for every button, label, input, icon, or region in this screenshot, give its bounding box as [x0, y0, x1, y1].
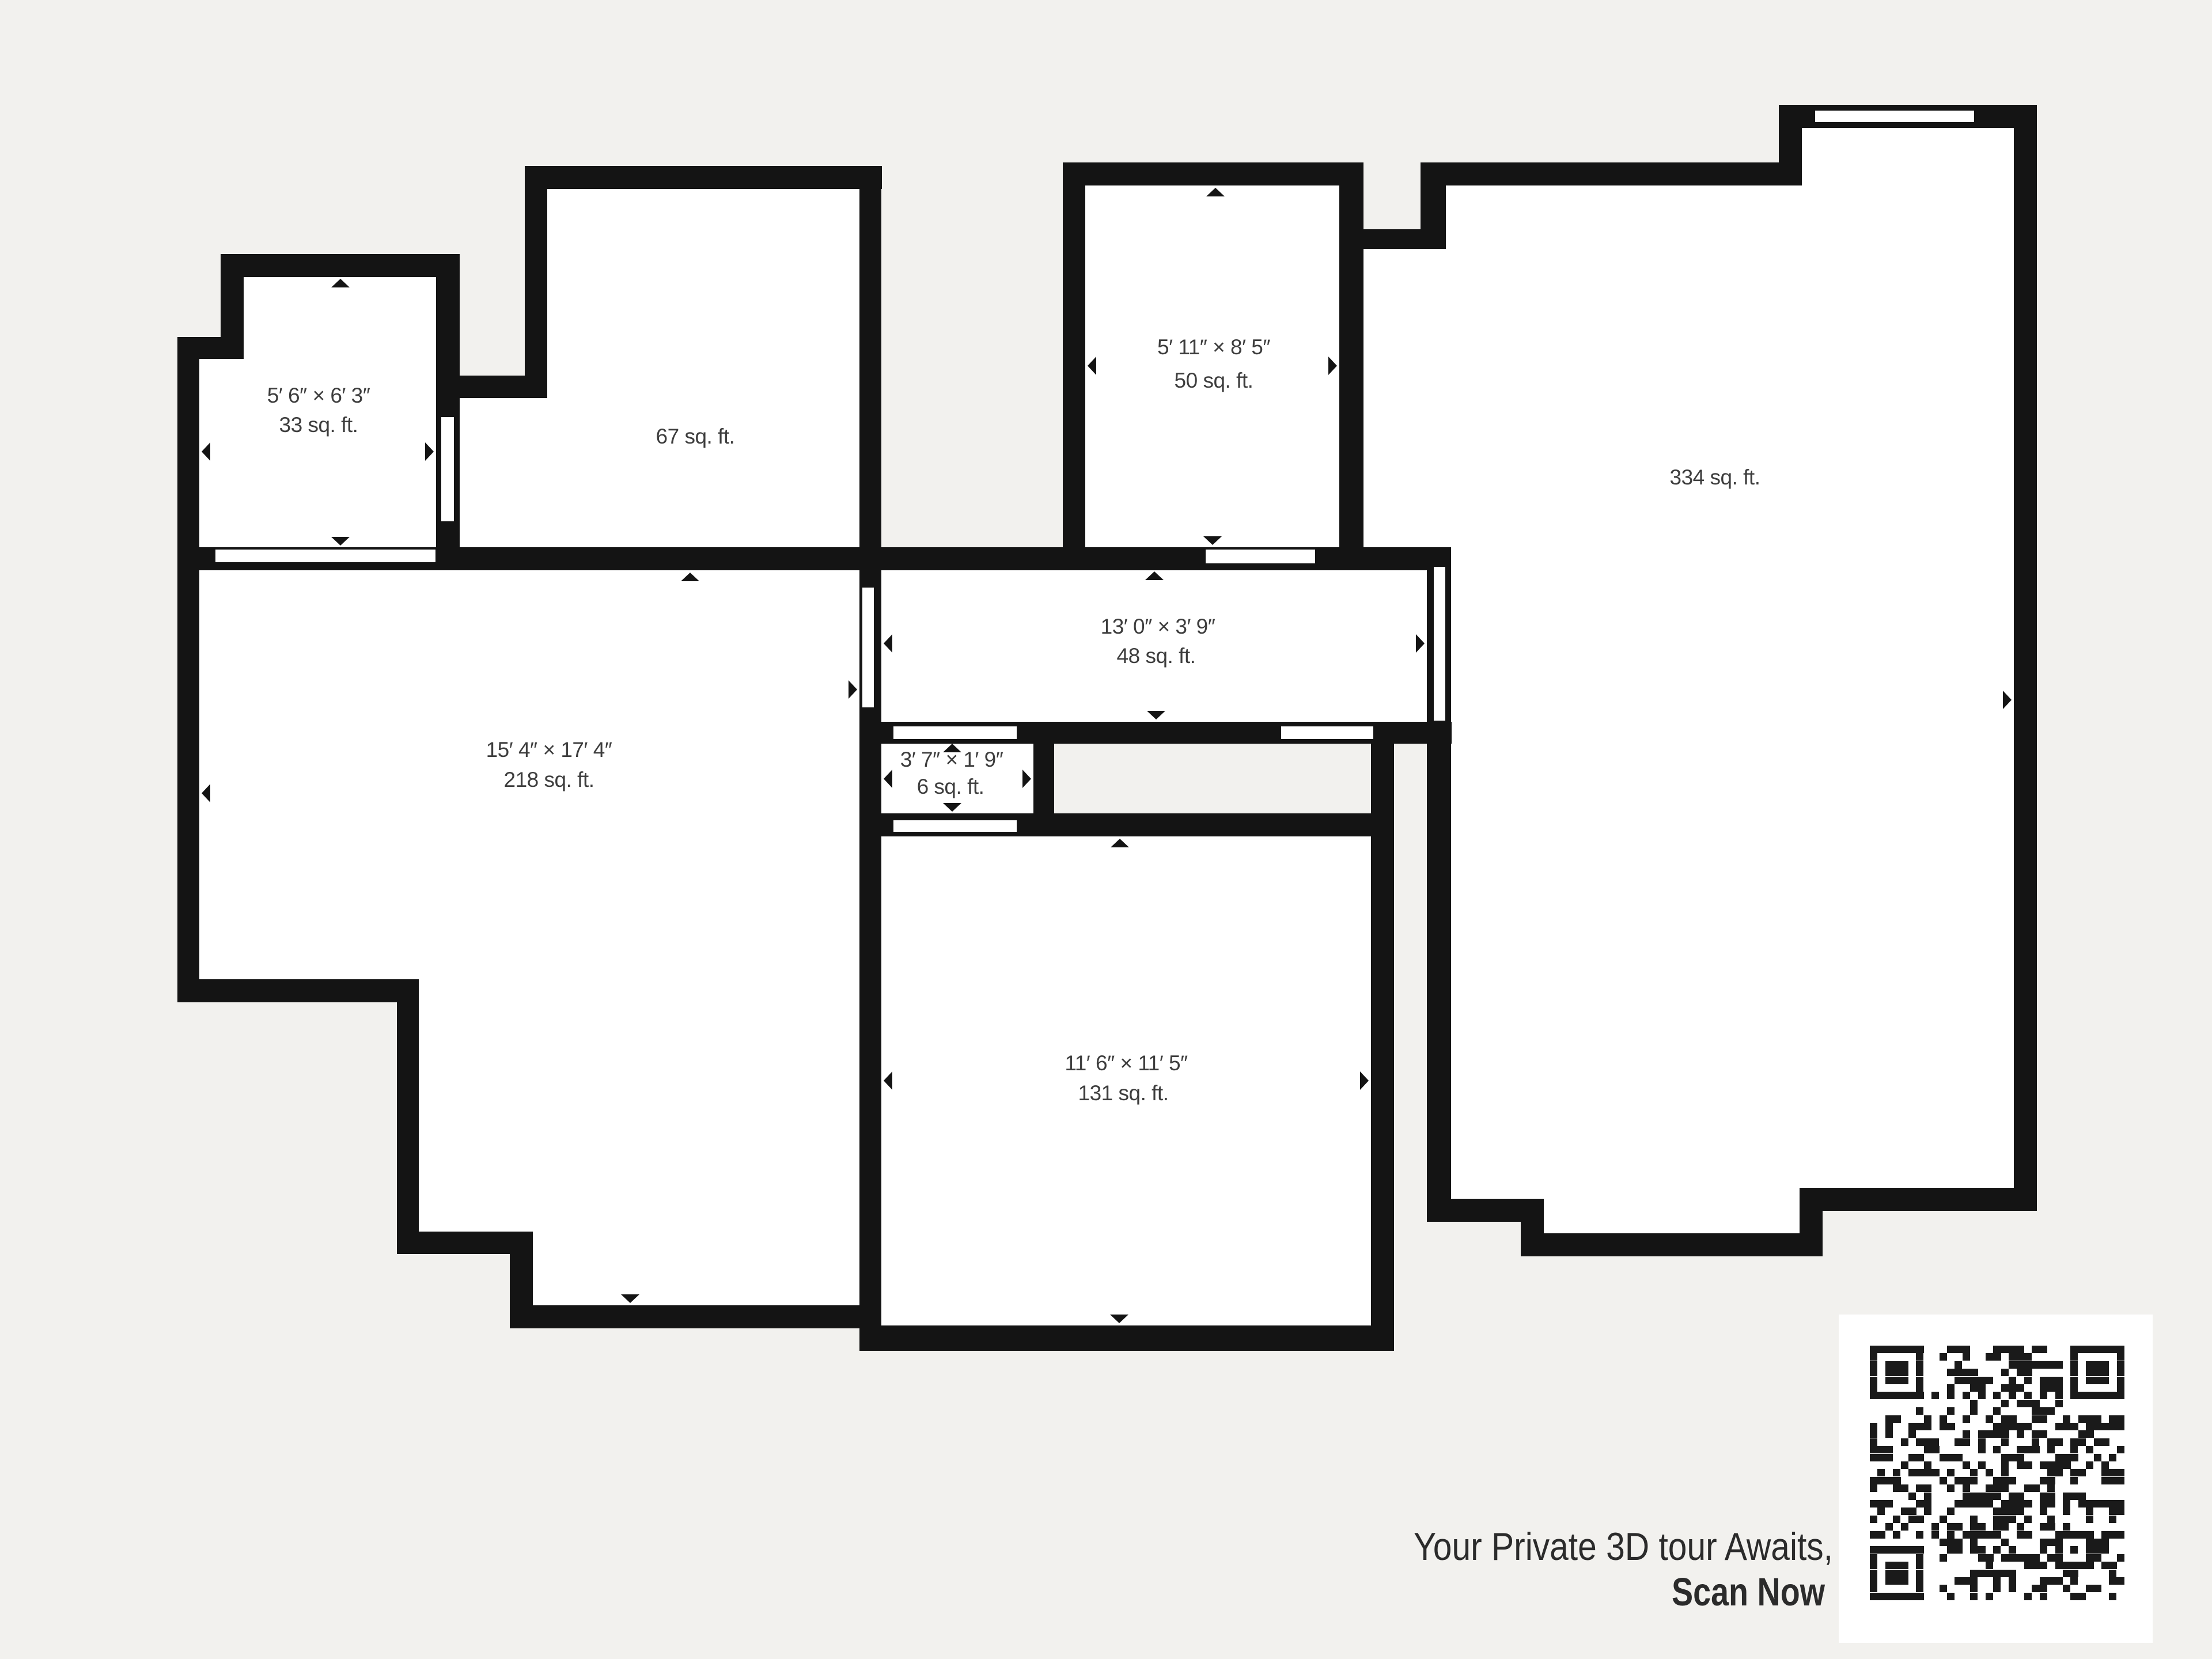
- svg-text:Your Private 3D tour Awaits,: Your Private 3D tour Awaits,: [1414, 1525, 1833, 1569]
- svg-text:3′ 7″ × 1′ 9″: 3′ 7″ × 1′ 9″: [900, 748, 1003, 771]
- svg-text:67 sq. ft.: 67 sq. ft.: [656, 425, 735, 448]
- svg-text:15′ 4″ × 17′ 4″: 15′ 4″ × 17′ 4″: [486, 738, 612, 762]
- svg-text:6 sq. ft.: 6 sq. ft.: [917, 775, 984, 798]
- svg-text:131 sq. ft.: 131 sq. ft.: [1078, 1081, 1169, 1105]
- svg-text:33 sq. ft.: 33 sq. ft.: [279, 413, 358, 437]
- svg-text:Scan Now: Scan Now: [1672, 1570, 1825, 1614]
- svg-text:48 sq. ft.: 48 sq. ft.: [1117, 644, 1196, 668]
- svg-text:50 sq. ft.: 50 sq. ft.: [1175, 369, 1253, 392]
- svg-text:218 sq. ft.: 218 sq. ft.: [504, 768, 594, 791]
- svg-text:11′ 6″ × 11′ 5″: 11′ 6″ × 11′ 5″: [1065, 1051, 1188, 1075]
- svg-text:334 sq. ft.: 334 sq. ft.: [1670, 465, 1760, 489]
- svg-text:13′ 0″ × 3′ 9″: 13′ 0″ × 3′ 9″: [1101, 615, 1215, 638]
- svg-text:5′ 6″ × 6′ 3″: 5′ 6″ × 6′ 3″: [267, 384, 370, 407]
- svg-text:5′ 11″ × 8′ 5″: 5′ 11″ × 8′ 5″: [1157, 335, 1270, 359]
